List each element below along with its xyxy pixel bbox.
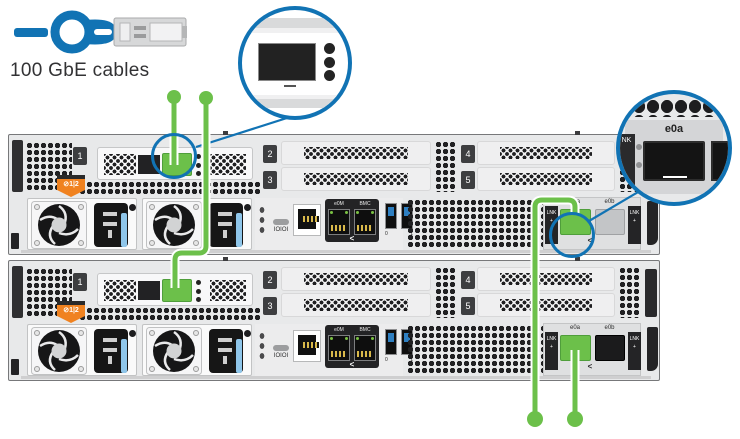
psu-fan-icon (31, 201, 87, 249)
e0b-port (595, 209, 625, 235)
vent-strip (65, 181, 262, 194)
rj45-port (298, 335, 316, 355)
led-dot (636, 144, 642, 150)
vent-field (407, 199, 543, 249)
card-vent-dots (104, 154, 136, 175)
e0a-port-label: e0a (560, 325, 590, 331)
legend: 100 GbE cables (0, 0, 220, 90)
rail-tick (575, 131, 580, 135)
e0b-port-label: e0b (595, 325, 624, 331)
wrench-port (293, 204, 321, 236)
slot-1-label: 1 (73, 147, 87, 165)
e0a-port-label: e0a (560, 199, 590, 205)
card-face-band (242, 28, 348, 33)
psu-release-tab (236, 213, 242, 247)
cover-vent-dots (304, 147, 408, 159)
cable-endpoint-dot (567, 411, 583, 427)
e0b-port-label: e0b (595, 199, 624, 205)
management-panel: IOIOI e0M BMC < 0 1 (255, 198, 403, 250)
slot-4-label: 4 (461, 145, 475, 163)
card-vent-dots (104, 280, 136, 301)
card-face-band (242, 99, 348, 108)
callout-port-closeup (238, 6, 352, 120)
vent-strip (65, 307, 262, 320)
e0b-port (595, 335, 625, 361)
slot-4-label: 4 (461, 271, 475, 289)
rail-tick (223, 257, 228, 261)
cover-vent-dots (500, 147, 592, 159)
e0b-port-partial (711, 141, 732, 181)
psu-screw (129, 330, 136, 337)
onboard-port-block: LNK + e0a e0b LNK + < (543, 323, 641, 376)
left-foot (11, 233, 19, 249)
bmc-rj45-port (354, 209, 376, 235)
bmc-rj45-port (354, 335, 376, 361)
slot-5-blank-cover (477, 167, 615, 191)
e0m-port-label: e0M (327, 327, 351, 333)
psu-release-tab (236, 339, 242, 373)
led-dot (636, 162, 642, 168)
vent-column (619, 267, 639, 318)
psu-screw (129, 204, 136, 211)
cover-vent-dots (304, 273, 408, 285)
card-vent-dots (210, 154, 246, 175)
slot-3-label: 3 (263, 297, 277, 315)
psu-screw (244, 330, 251, 337)
e0a-port-closeup (643, 141, 705, 181)
usb-port-0 (385, 329, 397, 355)
right-latch (647, 327, 658, 371)
qsfp-port-closeup (258, 43, 316, 81)
slot-2-label: 2 (263, 271, 277, 289)
lan-icon: < (325, 360, 379, 369)
cable-endpoint-dot (199, 91, 213, 105)
psu-fan-icon (31, 327, 87, 375)
slot-2-blank-cover (281, 267, 431, 291)
link-led-tab-right: LNK + (628, 332, 641, 370)
management-panel: IOIOI e0M BMC < 0 1 (255, 324, 403, 376)
mgmt-port-block: e0M BMC < (325, 325, 379, 368)
slot-3-blank-cover (281, 293, 431, 317)
left-foot (11, 359, 19, 375)
rail-tick (223, 131, 228, 135)
micro-usb-console-port (273, 219, 289, 225)
psu-release-tab (121, 339, 127, 373)
power-supply-2 (142, 324, 252, 376)
power-supply-1 (27, 324, 137, 376)
cover-vent-dots (500, 273, 592, 285)
port-highlight-circle-slot1 (151, 133, 197, 179)
psu-warning-label: 1|2 (69, 181, 79, 188)
e0m-rj45-port (328, 335, 350, 361)
card-port-green-highlight (162, 279, 192, 302)
controller-latch (645, 269, 657, 317)
slot-5-label: 5 (461, 297, 475, 315)
slot-2-label: 2 (263, 145, 277, 163)
slot-5-blank-cover (477, 293, 615, 317)
cable-endpoint-dot (167, 90, 181, 104)
vent-column (435, 141, 457, 192)
slot-4-blank-cover (477, 267, 615, 291)
cabling-diagram: 100 GbE cables 1 ⊘1|2 2 3 4 5 (0, 0, 740, 439)
right-latch (647, 201, 658, 245)
bottom-rail (21, 376, 651, 379)
psu-warning-label: 1|2 (69, 307, 79, 314)
mgmt-port-block: e0M BMC < (325, 199, 379, 242)
vent-field (407, 325, 543, 375)
port-led-column (324, 43, 336, 81)
100gbe-cable-icon (8, 4, 208, 60)
left-ear-handle (12, 266, 23, 318)
left-ear-handle (12, 140, 23, 192)
slot-3-blank-cover (281, 167, 431, 191)
e0a-port-highlighted (560, 335, 591, 361)
slot-5-label: 5 (461, 171, 475, 189)
micro-usb-console-port (273, 345, 289, 351)
psu-screw (244, 204, 251, 211)
cover-vent-dots (500, 299, 592, 311)
wrench-port (293, 330, 321, 362)
cover-vent-dots (500, 173, 592, 185)
controller-chassis-b: 1 ⊘1|2 2 3 4 5 (8, 260, 660, 381)
slot-3-label: 3 (263, 171, 277, 189)
card-vent-dots (210, 280, 246, 301)
callout-e0a-closeup: e0a NK (616, 90, 732, 206)
cover-vent-dots (304, 299, 408, 311)
link-led-tab-right: LNK + (628, 206, 641, 244)
card-face-band (242, 18, 348, 28)
card-face-band (242, 95, 348, 99)
slot-1-label: 1 (73, 273, 87, 291)
port-highlight-circle-e0a (549, 212, 595, 258)
port-mark (714, 185, 719, 189)
e0m-rj45-port (328, 209, 350, 235)
card-port-dark (138, 281, 160, 300)
psu-fan-icon (146, 327, 202, 375)
e0a-closeup-label: e0a (620, 123, 728, 135)
power-supply-1 (27, 198, 137, 250)
rj45-port (298, 209, 316, 229)
port-mark (284, 85, 296, 87)
cover-vent-dots (304, 173, 408, 185)
slot-2-blank-cover (281, 141, 431, 165)
vent-squares (632, 99, 722, 117)
slot-4-blank-cover (477, 141, 615, 165)
bmc-port-label: BMC (353, 327, 377, 333)
power-supply-2 (142, 198, 252, 250)
bmc-port-label: BMC (353, 201, 377, 207)
legend-label: 100 GbE cables (10, 60, 149, 82)
cable-endpoint-dot (527, 411, 543, 427)
slot1-io-card (97, 273, 253, 306)
lan-icon: < (576, 362, 604, 371)
psu-release-tab (121, 213, 127, 247)
link-led-tab-left: LNK + (545, 332, 558, 370)
vent-column (435, 267, 457, 318)
link-tab-partial: NK (618, 134, 635, 186)
usb-port-0 (385, 203, 397, 229)
e0m-port-label: e0M (327, 201, 351, 207)
card-led-column (196, 280, 202, 302)
lan-icon: < (325, 234, 379, 243)
psu-fan-icon (146, 201, 202, 249)
